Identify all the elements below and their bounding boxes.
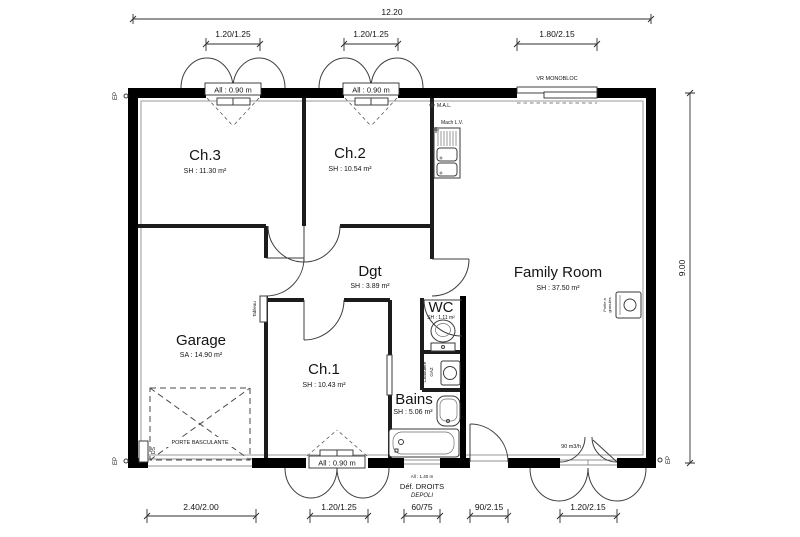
- def-droits-label: Déf. DROITS: [400, 482, 444, 491]
- sill-label-bains: All : 1.40 m: [411, 474, 434, 479]
- room-area-dgt: SH : 3.89 m²: [350, 283, 390, 290]
- sill-label-ch3: All : 0.90 m: [214, 86, 252, 95]
- ep-label-bottom-left: EP: [113, 457, 119, 465]
- kitchen-sink-unit: M.A.L. Mach L.V.: [429, 102, 463, 178]
- ds-box: [139, 441, 148, 462]
- dim-garage-door: 2.40/2.00: [183, 502, 219, 512]
- room-name-ch1: Ch.1: [308, 361, 340, 378]
- room-area-garage: SA : 14.90 m²: [180, 352, 223, 359]
- dim-window-bains: 60/75: [411, 502, 433, 512]
- bathtub: [389, 429, 459, 457]
- room-area-wc: SH : 1.11 m²: [427, 315, 455, 321]
- drainer-hatch: [438, 131, 456, 146]
- depoli-label: DEPOLI: [411, 493, 433, 499]
- door-leaf-bains: [387, 355, 392, 395]
- door-arc-ch1: [304, 300, 344, 340]
- ep-label-top-left: EP: [113, 92, 119, 100]
- tableau-box: [260, 296, 267, 322]
- door-arc-ch3: [268, 226, 304, 262]
- dim-top-total: 12.20: [381, 7, 403, 17]
- room-name-wc: WC: [429, 299, 454, 316]
- chaudiere-label-1: Chaudière: [422, 361, 427, 382]
- dim-right-total: 9.00: [677, 259, 687, 276]
- window-bains: All : 1.40 m Déf. DROITS DEPOLI: [400, 457, 444, 499]
- room-name-garage: Garage: [176, 332, 226, 349]
- ep-label-bottom-right: EP: [666, 456, 672, 464]
- chaudiere-label-2: GAZ: [429, 367, 434, 377]
- room-name-dgt: Dgt: [358, 263, 382, 280]
- dim-window-ch1: 1.20/1.25: [321, 502, 357, 512]
- floor-plan-drawing: All : 0.90 m All : 0.90 m VR MONOBLOC PO…: [0, 0, 800, 537]
- sliding-window-leaf: [544, 92, 597, 98]
- ep-marker-icon: [658, 458, 662, 462]
- room-name-bains: Bains: [395, 391, 433, 408]
- window-vr-monobloc: VR MONOBLOC: [517, 76, 597, 103]
- porte-basculante-label: PORTE BASCULANTE: [171, 440, 228, 446]
- washbasin: [437, 396, 460, 426]
- room-area-ch2: SH : 10.54 m²: [328, 166, 372, 173]
- pellet-stove: Poêle à granulés: [602, 292, 641, 318]
- vent-flow-label: 90 m3/h: [561, 444, 581, 450]
- door-arc-ch2: [304, 226, 340, 262]
- dim-window-ch2: 1.20/1.25: [353, 29, 389, 39]
- vr-monobloc-label: VR MONOBLOC: [536, 76, 577, 82]
- room-name-family: Family Room: [514, 264, 602, 281]
- door-arc-family: [432, 259, 469, 296]
- poele-label-2: granulés: [607, 297, 612, 312]
- ep-marker-icon: [124, 94, 128, 98]
- ep-marker-icon: [124, 459, 128, 463]
- sill-label-ch2: All : 0.90 m: [352, 86, 390, 95]
- ds-label: DS: [151, 446, 157, 454]
- window-family: 90 m3/h: [530, 437, 646, 501]
- entry-door-arc: [470, 424, 508, 462]
- garage-door: PORTE BASCULANTE: [148, 388, 252, 469]
- mach-lv-label: Mach L.V.: [441, 120, 463, 126]
- room-area-ch3: SH : 11.30 m²: [184, 168, 227, 175]
- mal-label: M.A.L.: [437, 103, 451, 109]
- toilet-tank: [431, 343, 455, 351]
- gas-boiler: Chaudière GAZ: [422, 361, 460, 385]
- window-swing-arcs-outside: [530, 468, 646, 501]
- room-name-ch3: Ch.3: [189, 147, 221, 164]
- electrical-panel: Tableau: [252, 296, 267, 322]
- floor-plan-page: All : 0.90 m All : 0.90 m VR MONOBLOC PO…: [0, 0, 800, 537]
- entry-door: [470, 424, 508, 469]
- room-area-family: SH : 37.50 m²: [536, 285, 580, 292]
- dim-window-family-top: 1.80/2.15: [539, 29, 575, 39]
- dim-window-ch3: 1.20/1.25: [215, 29, 251, 39]
- room-name-ch2: Ch.2: [334, 145, 366, 162]
- door-arc-garage: [266, 258, 304, 296]
- dim-window-family-bottom: 1.20/2.15: [570, 502, 606, 512]
- room-area-ch1: SH : 10.43 m²: [302, 382, 346, 389]
- mal-marker-icon: [429, 102, 435, 108]
- room-area-bains: SH : 5.06 m²: [393, 409, 433, 416]
- window-swing-arcs: [285, 468, 389, 498]
- tableau-label: Tableau: [252, 301, 257, 317]
- dim-entry-door: 90/2.15: [475, 502, 504, 512]
- sill-label-ch1: All : 0.90 m: [318, 459, 356, 468]
